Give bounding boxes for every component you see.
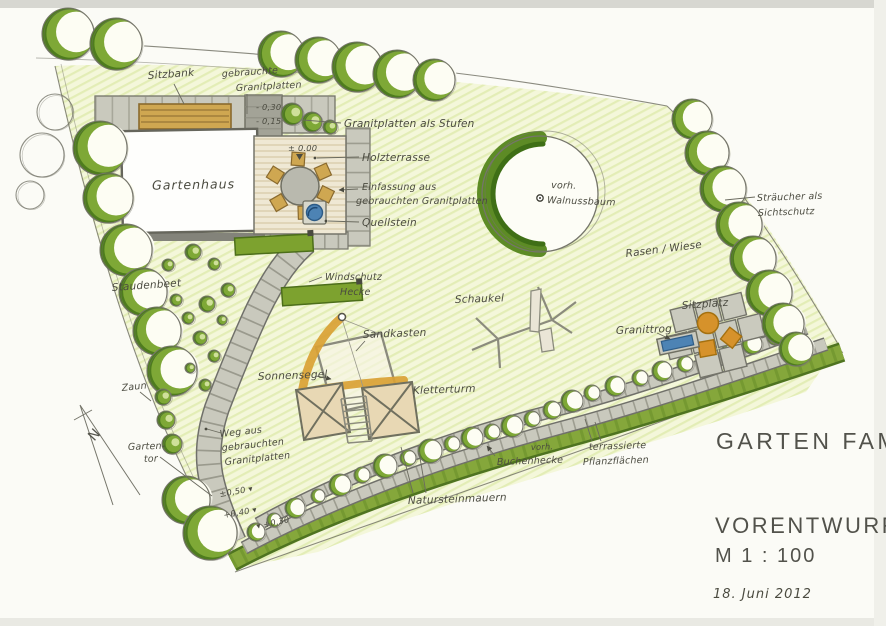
elevation-steps-lower: - 0,15 (256, 116, 281, 126)
plan-scale: M 1 : 100 (715, 545, 816, 567)
gartenhaus-label: Gartenhaus (152, 176, 235, 192)
label-kletterturm: Kletterturm (413, 383, 476, 397)
elevation-steps-upper: - 0,30 (256, 102, 281, 112)
label-walnussbaum-1: vorh. (551, 180, 577, 192)
sitzplatz-chair (698, 340, 716, 358)
gartenhaus-building: Gartenhaus (121, 129, 259, 233)
label-einfassung-1: Einfassung aus (362, 182, 436, 193)
label-sichtschutz-2: Sichtschutz (758, 206, 816, 219)
plan-date: 18. Juni 2012 (713, 587, 812, 602)
project-title: GARTEN FAM. (716, 428, 886, 454)
label-gartentor-2: tor (144, 453, 159, 465)
label-einfassung-2: gebrauchten Granitplatten (356, 196, 488, 207)
terrace-table (281, 167, 319, 205)
garden-plan-drawing: Gartenhaus (0, 0, 886, 626)
label-buchenhecke-1: vorh. (531, 441, 554, 452)
plan-stage: VORENTWURF (715, 513, 886, 538)
label-schaukel: Schaukel (455, 292, 505, 306)
label-windschutz-2: Hecke (340, 287, 371, 298)
sitzplatz-table (698, 313, 719, 334)
label-stufen: Granitplatten als Stufen (344, 118, 475, 130)
label-quellstein: Quellstein (362, 217, 417, 229)
photo-edge-bottom (0, 618, 886, 626)
label-windschutz-1: Windschutz (325, 272, 383, 283)
elevation-terrace: ± 0.00 (288, 143, 317, 153)
label-pflanzflaechen-2: Pflanzflächen (583, 455, 649, 468)
tree-icon (779, 332, 815, 367)
label-granittrog: Granittrog (616, 323, 673, 337)
label-gartentor-1: Garten- (128, 441, 166, 453)
sail-pole (339, 314, 346, 321)
tree-icon (83, 173, 136, 224)
label-holzterrasse: Holzterrasse (362, 152, 430, 164)
quellstein-feature (303, 201, 326, 224)
photo-edge-top (0, 0, 886, 8)
label-sichtschutz-1: Sträucher als (757, 191, 823, 204)
label-sandkasten: Sandkasten (363, 327, 427, 341)
label-sonnensegel: Sonnensegel (258, 369, 328, 383)
label-buchenhecke-2: Buchenhecke (497, 455, 564, 468)
garden-plan-page: Gartenhaus (0, 0, 886, 626)
label-pflanzflaechen-1: terrassierte (589, 440, 647, 453)
tree-icon (413, 59, 457, 102)
